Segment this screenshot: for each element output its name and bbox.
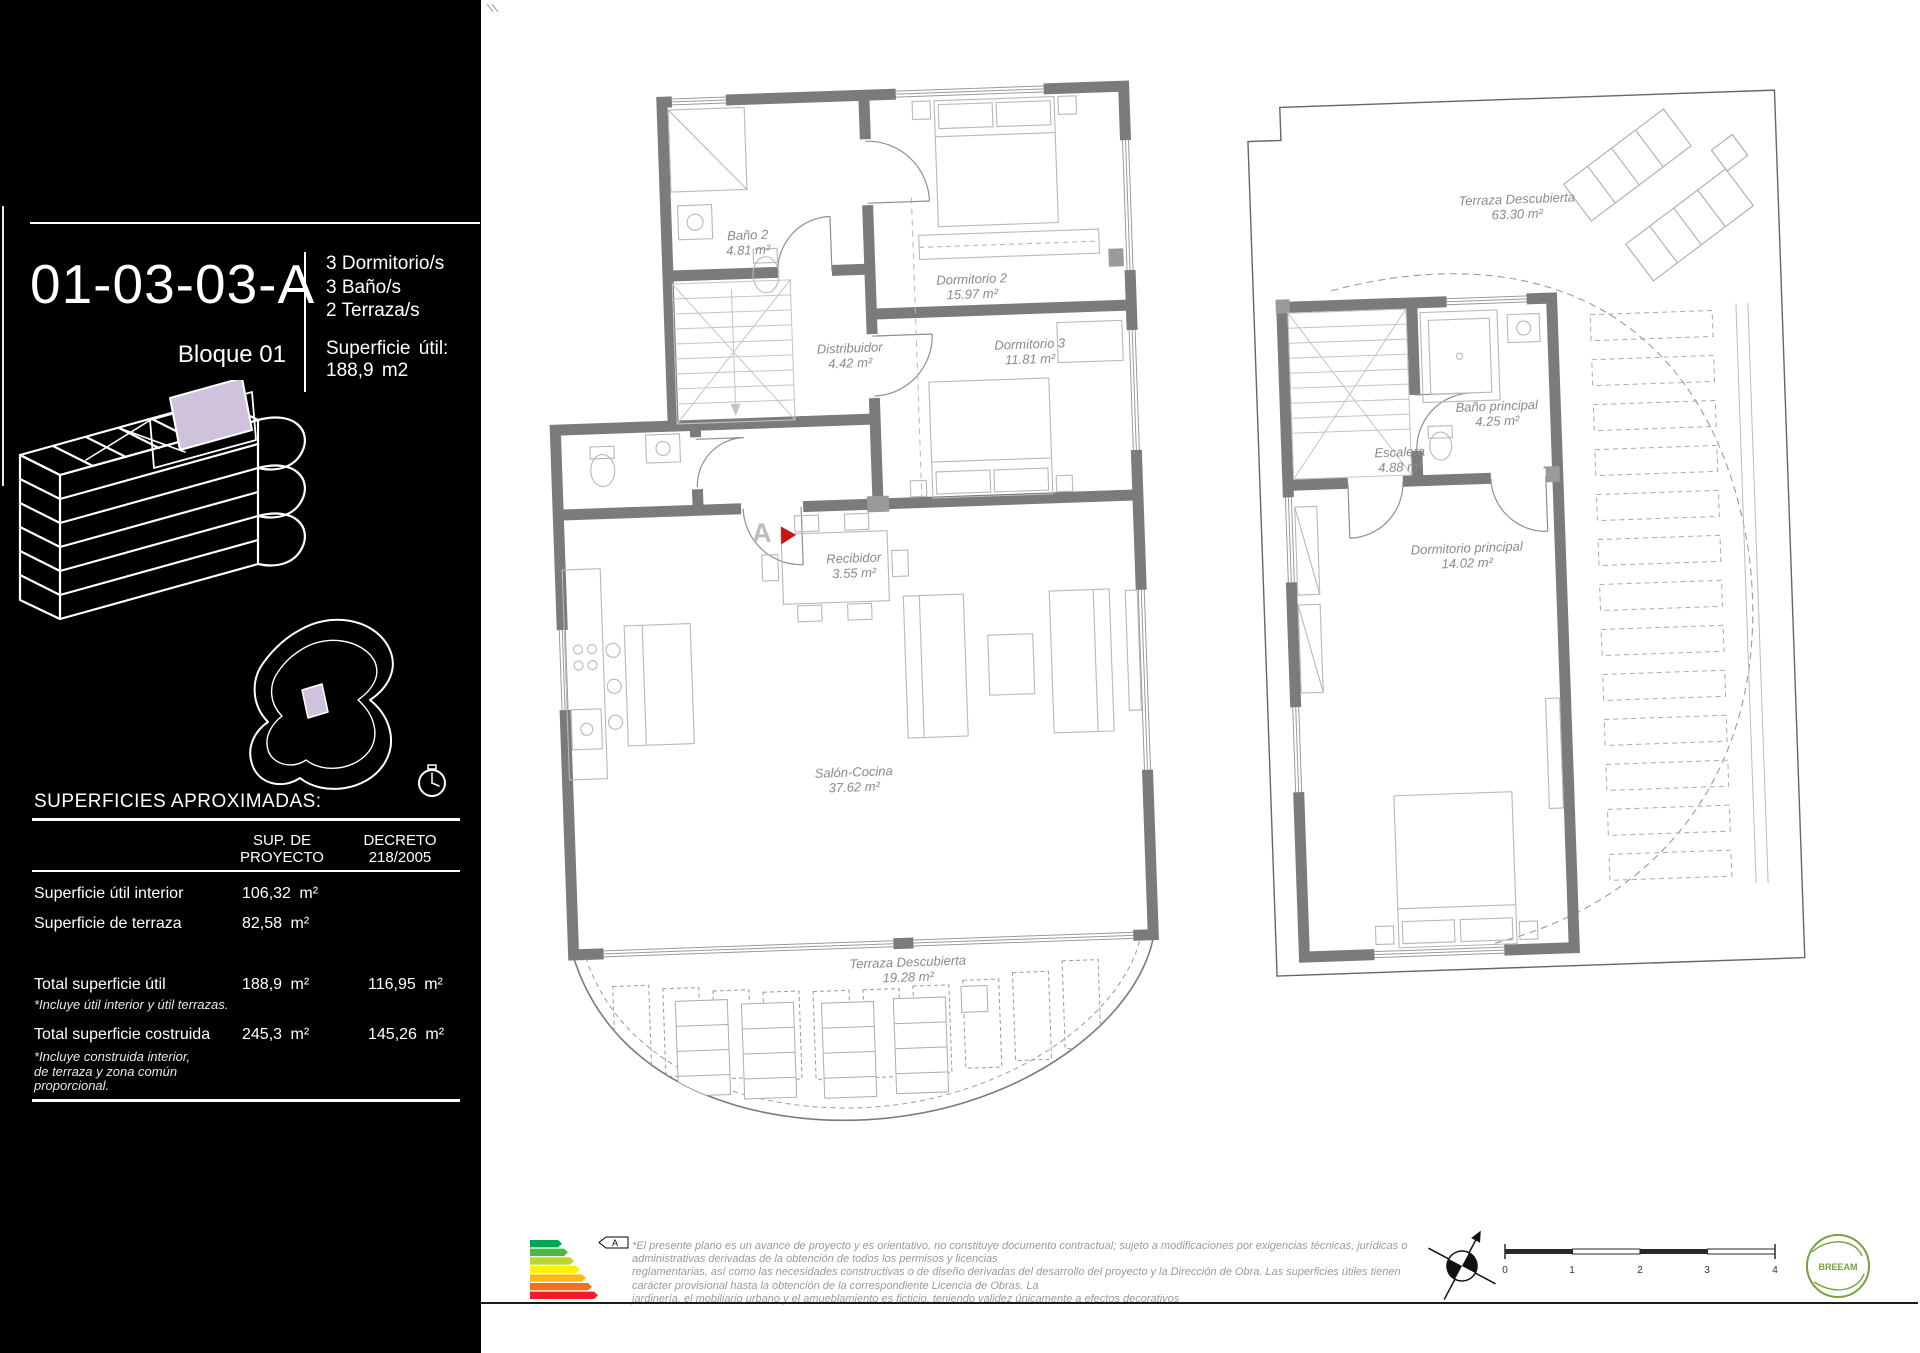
svg-text:2: 2 xyxy=(1637,1265,1643,1276)
svg-text:3: 3 xyxy=(1704,1265,1710,1276)
table-cell-proyecto: 82,58 m² xyxy=(242,915,309,933)
superficie-util: Superficie útil: 188,9 m2 xyxy=(326,338,448,382)
sidebar-panel: 01-03-03-A 3 Dormitorio/s 3 Baño/s 2 Ter… xyxy=(0,0,481,1353)
energy-class-letter: A xyxy=(612,1238,618,1248)
spec-banos: 3 Baño/s xyxy=(326,276,444,300)
highlighted-unit xyxy=(170,380,252,450)
table-rule xyxy=(32,1099,460,1102)
table-rule xyxy=(32,870,460,872)
entry-direction-triangle xyxy=(781,526,797,545)
scale-numbers: 0 1 2 3 4 xyxy=(1502,1265,1778,1276)
entry-marker-letter: A xyxy=(751,518,772,550)
spec-terrazas: 2 Terraza/s xyxy=(326,299,444,323)
sidebar-divider xyxy=(304,252,306,392)
table-row-label: Total superficie costruida xyxy=(34,1026,210,1044)
superficie-util-label: Superficie útil: xyxy=(326,338,448,360)
table-title: SUPERFICIES APROXIMADAS: xyxy=(34,791,322,813)
table-cell-decreto: 145,26 m² xyxy=(368,1026,444,1044)
table-cell-decreto: 116,95 m² xyxy=(368,976,443,994)
table-rule xyxy=(32,818,460,821)
table-col-header-proyecto: SUP. DE PROYECTO xyxy=(237,832,327,866)
table-cell-proyecto: 188,9 m² xyxy=(242,976,309,994)
building-key-illustration xyxy=(0,380,470,810)
superficie-util-value: 188,9 m2 xyxy=(326,360,448,382)
disclaimer-text: *El presente plano es un avance de proye… xyxy=(632,1240,1402,1306)
scale-bar xyxy=(1505,1244,1775,1259)
svg-text:0: 0 xyxy=(1502,1265,1508,1276)
sheet-bottom-rule xyxy=(481,1302,1918,1304)
highlighted-unit-siteplan xyxy=(302,684,328,718)
table-row-label: Superficie de terraza xyxy=(34,915,182,933)
table-cell-proyecto: 106,32 m² xyxy=(242,885,318,903)
table-cell-proyecto: 245,3 m² xyxy=(242,1026,309,1044)
unit-specs: 3 Dormitorio/s 3 Baño/s 2 Terraza/s xyxy=(326,252,444,323)
table-row-label: Total superficie útil xyxy=(34,976,166,994)
unit-code: 01-03-03-A xyxy=(30,252,315,316)
floorplans-drawing: A 0 1 2 3 4 BREEAM xyxy=(481,0,1920,1353)
breeam-label: BREEAM xyxy=(1818,1262,1857,1272)
svg-text:1: 1 xyxy=(1569,1265,1575,1276)
table-row-note: *Incluye útil interior y útil terrazas. xyxy=(34,998,228,1013)
table-col-header-decreto: DECRETO 218/2005 xyxy=(355,832,445,866)
spec-dormitorios: 3 Dormitorio/s xyxy=(326,252,444,276)
block-label: Bloque 01 xyxy=(100,341,286,369)
table-row-note: *Incluye construida interior, de terraza… xyxy=(34,1050,190,1094)
table-row-label: Superficie útil interior xyxy=(34,885,183,903)
svg-text:4: 4 xyxy=(1772,1265,1778,1276)
sidebar-top-rule xyxy=(30,222,480,224)
